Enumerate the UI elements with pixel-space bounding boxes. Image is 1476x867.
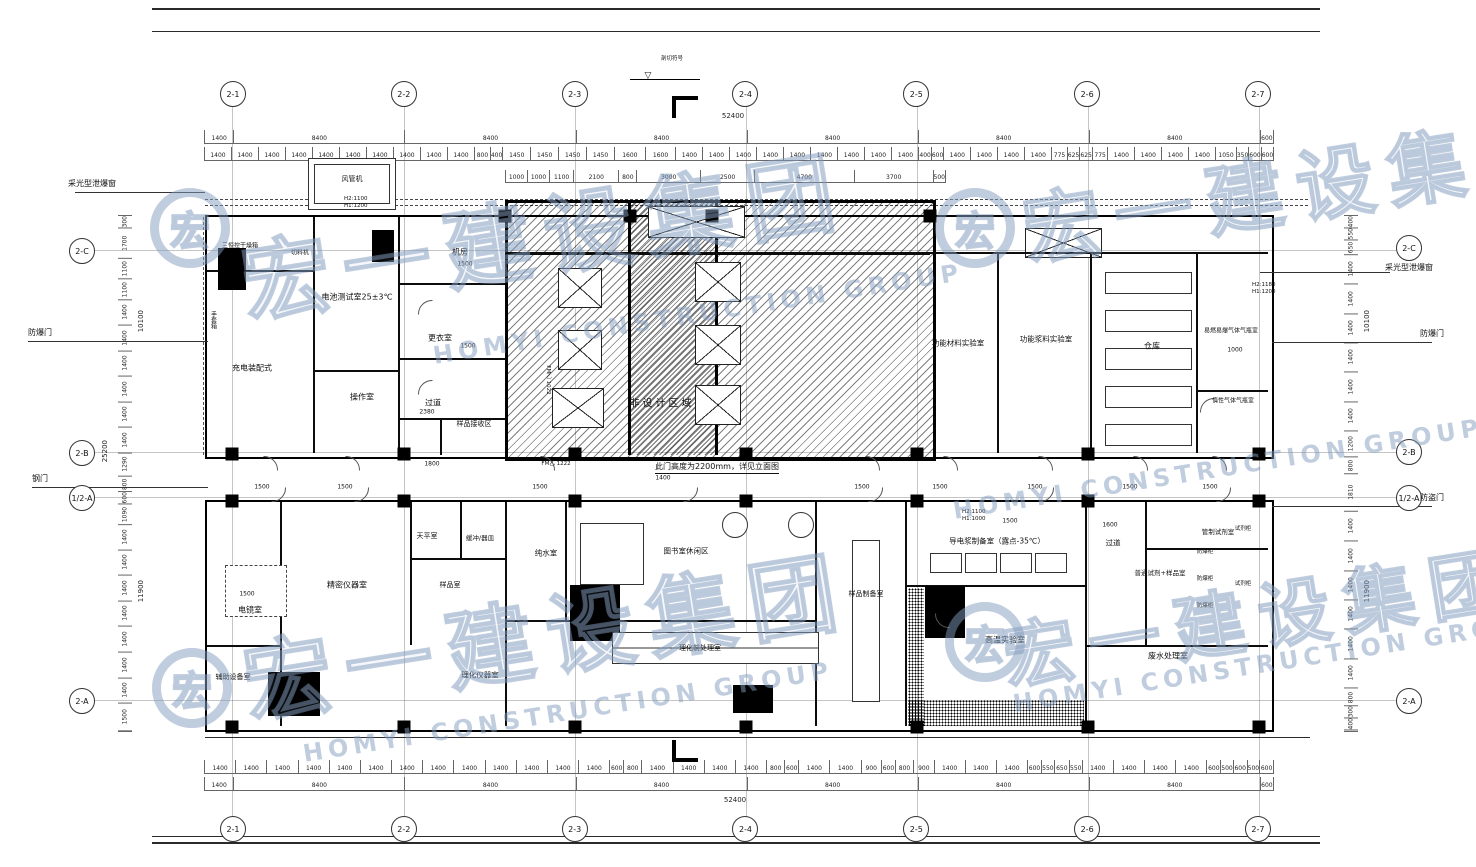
dimension-value: 400 xyxy=(1344,216,1358,228)
sheet-border-line xyxy=(152,31,1320,32)
wall xyxy=(398,358,505,360)
plinth-line xyxy=(205,737,1310,738)
dimension-value: 1400 xyxy=(783,147,810,160)
dimension-value: 550 xyxy=(1344,228,1358,240)
dimension-value: 600 xyxy=(931,147,943,160)
dimension-value: 1100 xyxy=(118,280,132,300)
axis-bubble: 2-5 xyxy=(903,81,929,107)
column xyxy=(911,448,924,461)
dimension-value: 1400 xyxy=(798,760,829,773)
equipment-label: 手套箱 xyxy=(209,311,218,329)
dimension-value: 1400 xyxy=(735,760,766,773)
skylight-window-label: 采光型泄爆窗 xyxy=(68,178,116,189)
room-label: 普通试剂+样品室 xyxy=(1135,567,1186,577)
dimension-value: 8400 xyxy=(918,777,1089,790)
dimension-value: 1400 xyxy=(1082,760,1113,773)
room-label: 废水处理室 xyxy=(1148,651,1188,662)
axis-bubble: 2-C xyxy=(1396,235,1422,261)
dimension-value: 800 xyxy=(1344,457,1358,474)
cabinet-label: 防爆柜 xyxy=(1197,601,1214,609)
column xyxy=(499,210,512,223)
column xyxy=(924,210,937,223)
column xyxy=(226,495,239,508)
room-label: 充电装配式 xyxy=(232,363,272,374)
height-note: H1:1200 xyxy=(1252,289,1276,295)
wall xyxy=(997,253,999,453)
dimension-value: 1400 xyxy=(1344,630,1358,659)
dimension-value: 1400 xyxy=(118,300,132,326)
equipment-xbox xyxy=(695,262,741,302)
inline-dim: 1400 xyxy=(655,475,670,482)
column xyxy=(624,210,637,223)
column xyxy=(740,495,753,508)
lab-bench xyxy=(852,540,880,702)
blast-door-label: 防爆门 xyxy=(28,327,52,338)
dimension-value: 1400 xyxy=(204,130,233,143)
leader-line xyxy=(28,341,208,342)
dimension-value: 1400 xyxy=(118,402,132,428)
wall xyxy=(440,418,442,455)
inline-dim: 1500 xyxy=(254,484,269,491)
wall xyxy=(905,502,907,726)
dimension-value: 1400 xyxy=(329,760,360,773)
dimension-value: 550 xyxy=(1069,760,1082,773)
dimension-value: 1400 xyxy=(1344,402,1358,431)
dimension-value: 650 xyxy=(1054,760,1069,773)
dimension-value: 1090 xyxy=(118,505,132,525)
wall xyxy=(505,620,817,622)
room-label: 过道 xyxy=(1106,538,1121,549)
axis-bubble: 2-7 xyxy=(1245,81,1271,107)
door-arc xyxy=(1120,456,1148,484)
dimension-value: 775 xyxy=(1092,147,1107,160)
storage-rack xyxy=(1105,424,1192,446)
storage-rack xyxy=(1105,386,1192,408)
dimension-value: 600 xyxy=(1233,760,1247,773)
dimension-value: 625 xyxy=(1079,147,1092,160)
column xyxy=(398,495,411,508)
dimension-value: 1400 xyxy=(1144,760,1175,773)
column xyxy=(740,721,753,734)
room-label: 功能材料实验室 xyxy=(932,338,985,349)
wall xyxy=(930,252,1268,254)
inline-dim: 1500 xyxy=(932,484,947,491)
axis-bubble: 1/2-A xyxy=(69,485,95,511)
dimension-value: 350 xyxy=(1236,147,1248,160)
dimension-value: 1400 xyxy=(829,760,860,773)
column xyxy=(1082,448,1095,461)
dimension-value: 1400 xyxy=(420,147,447,160)
dimension-value: 1000 xyxy=(505,170,527,182)
wall xyxy=(313,370,398,372)
height-note: H1:1000 xyxy=(962,516,986,522)
wall xyxy=(207,645,280,647)
dimension-value: 600 xyxy=(1261,147,1273,160)
dimension-value: 1400 xyxy=(1344,285,1358,314)
cabinet-label: 防爆柜 xyxy=(1197,574,1214,582)
room-label: 理化前处理室 xyxy=(679,643,721,653)
dimension-value: 1400 xyxy=(485,760,516,773)
dimension-value: 1400 xyxy=(997,147,1024,160)
dimension-value: 1290 xyxy=(118,453,132,477)
dimension-value: 1400 xyxy=(204,777,233,790)
dimension-value: 1400 xyxy=(810,147,837,160)
column xyxy=(398,448,411,461)
dimension-value: 1450 xyxy=(558,147,586,160)
dimension-value: 1400 xyxy=(258,147,285,160)
wall-dashed-line xyxy=(203,217,204,455)
dimension-value: 1400 xyxy=(641,760,672,773)
dimension-value: 1450 xyxy=(530,147,558,160)
cabinet xyxy=(1000,553,1032,573)
leader-line xyxy=(75,192,205,193)
dimension-value: 1400 xyxy=(943,147,970,160)
room-label: 缓冲/器皿 xyxy=(466,532,494,542)
dimension-value: 1400 xyxy=(1344,600,1358,629)
cabinet xyxy=(1035,553,1067,573)
round-table xyxy=(788,512,814,538)
leader-line xyxy=(1272,342,1432,343)
inline-dim: 2380 xyxy=(419,409,434,416)
dimension-value: 600 xyxy=(1259,760,1273,773)
column xyxy=(569,495,582,508)
dim-row-bottom-spans: 1400840084008400840084008400600 xyxy=(204,777,1274,791)
axis-bubble: 2-5 xyxy=(903,816,929,842)
left-total-dimension: 25200 xyxy=(101,440,109,462)
dimension-value: 1700 xyxy=(118,228,132,259)
dimension-value: 1400 xyxy=(965,760,996,773)
inline-dim: 1500 xyxy=(1202,484,1217,491)
equipment-xbox xyxy=(695,325,741,365)
dimension-value: 3000 xyxy=(636,170,700,182)
wall xyxy=(410,558,505,560)
column xyxy=(398,721,411,734)
axis-bubbles-bottom: 2-12-22-32-42-52-62-7 xyxy=(220,816,1271,842)
room-label: 样品制备室 xyxy=(849,589,884,599)
inline-dim: 1500 xyxy=(854,484,869,491)
height-note: H2:1180 xyxy=(1252,282,1276,288)
dimension-value: 8400 xyxy=(404,777,575,790)
dimension-value: 8400 xyxy=(233,130,404,143)
dimension-value: 300 xyxy=(118,216,132,228)
dimension-value: 1400 xyxy=(547,760,578,773)
logo-glyph: 宏 xyxy=(170,199,210,257)
inline-dim: 1600 xyxy=(1102,522,1117,529)
dimension-value: 800 xyxy=(474,147,490,160)
dimension-value: 1400 xyxy=(891,147,918,160)
column xyxy=(226,448,239,461)
room-label: 机房 xyxy=(452,247,468,258)
dimension-value: 1400 xyxy=(1175,760,1206,773)
column xyxy=(911,495,924,508)
dimension-value: 1100 xyxy=(549,170,573,182)
section-mark xyxy=(672,96,698,118)
cabinet xyxy=(965,553,997,573)
dimension-value: 400 xyxy=(918,147,930,160)
height-note: H1:1200 xyxy=(344,203,368,209)
axis-bubble: 2-B xyxy=(1396,439,1422,465)
blast-door-label: 防爆门 xyxy=(1420,328,1444,339)
library-table xyxy=(580,523,644,585)
storage-rack xyxy=(1105,272,1192,294)
dimension-value: 1400 xyxy=(118,627,132,653)
door-height-note: 此门高度为2200mm，详见立面图 xyxy=(655,461,779,474)
dim-row-bottom-fine: 1400140014001400140014001400140014001400… xyxy=(204,760,1274,774)
dimension-value: 1400 xyxy=(1344,659,1358,688)
dimension-value: 8400 xyxy=(233,777,404,790)
wall xyxy=(313,217,315,453)
door-tag: FM乙 1022 xyxy=(544,365,552,394)
axis-bubble: 2-3 xyxy=(562,816,588,842)
equipment-block xyxy=(268,672,320,716)
dimension-value: 1400 xyxy=(864,147,891,160)
dimension-value: 800 xyxy=(1344,689,1358,706)
dimension-value: 8400 xyxy=(1089,777,1260,790)
leader-line xyxy=(32,487,208,488)
dimension-value: 600 xyxy=(1206,760,1220,773)
dimension-value: 800 xyxy=(618,170,636,182)
dimension-value: 1400 xyxy=(1344,255,1358,284)
dimension-value: 4700 xyxy=(754,170,854,182)
dimension-value: 1400 xyxy=(298,760,329,773)
dimension-value: 1400 xyxy=(1344,373,1358,402)
dimension-value: 1400 xyxy=(729,147,756,160)
dimension-value: 1400 xyxy=(204,760,235,773)
room-label: 导电浆制备室（露点-35℃） xyxy=(949,536,1045,547)
room-label: 图书室休闲区 xyxy=(664,546,709,557)
dimension-value: 8400 xyxy=(918,130,1089,143)
dimension-value: 400 xyxy=(1344,718,1358,730)
room-label: 非设计区域 xyxy=(630,395,695,410)
dimension-value: 1400 xyxy=(118,653,132,679)
dimension-value: 1400 xyxy=(118,678,132,704)
room-label: 电镜室 xyxy=(238,605,262,616)
dimension-value: 1400 xyxy=(360,760,391,773)
dimension-value: 1400 xyxy=(516,760,547,773)
door-arc xyxy=(1199,456,1227,484)
dimension-value: 1400 xyxy=(204,147,231,160)
dimension-value: 1400 xyxy=(118,351,132,377)
dimension-value: 2500 xyxy=(700,170,754,182)
dimension-value: 800 xyxy=(766,760,784,773)
column xyxy=(1253,448,1266,461)
dimension-value: 8400 xyxy=(1089,130,1260,143)
dimension-value: 1400 xyxy=(118,601,132,627)
equipment-block xyxy=(925,586,965,638)
dimension-value: 1400 xyxy=(1161,147,1188,160)
dimension-value: 1400 xyxy=(447,147,474,160)
dimension-value: 1400 xyxy=(453,760,484,773)
dimension-value: 600 xyxy=(1027,760,1041,773)
skylight-window-label: 采光型泄爆窗 xyxy=(1385,262,1433,273)
room-label: 精密仪器室 xyxy=(327,580,367,591)
column xyxy=(1082,495,1095,508)
room-label: 天平室 xyxy=(417,531,438,541)
dimension-value: 1600 xyxy=(645,147,676,160)
dimension-value: 1400 xyxy=(391,760,422,773)
inline-dim: 1500 xyxy=(1027,484,1042,491)
cabinet xyxy=(930,553,962,573)
room-label: 高温实验室 xyxy=(985,635,1025,646)
room-label: 样品接收区 xyxy=(457,419,492,429)
inline-dim: 1000 xyxy=(1227,347,1242,354)
dimension-value: 1400 xyxy=(1344,314,1358,343)
cabinet-label: 试剂柜 xyxy=(1235,579,1252,587)
dim-row-top-spans: 1400840084008400840084008400600 xyxy=(204,130,1274,144)
dimension-value: 1400 xyxy=(1134,147,1161,160)
axis-bubble: 2-C xyxy=(69,238,95,264)
dimension-value: 1450 xyxy=(586,147,614,160)
dimension-value: 600 xyxy=(881,760,895,773)
dimension-value: 1400 xyxy=(118,428,132,454)
dimension-value: 1050 xyxy=(1215,147,1236,160)
storage-rack xyxy=(1105,310,1192,332)
dimension-value: 1400 xyxy=(837,147,864,160)
room-label: 惰性气体气瓶室 xyxy=(1212,396,1254,405)
dimension-value: 600 xyxy=(1260,777,1273,790)
dimension-value: 300 xyxy=(1344,706,1358,718)
dimension-value: 900 xyxy=(861,760,881,773)
dimension-value: 1400 xyxy=(118,576,132,602)
dimension-value: 500 xyxy=(933,170,945,182)
height-note: H2:1100 xyxy=(962,509,986,515)
dimension-value: 1400 xyxy=(422,760,453,773)
dimension-value: 400 xyxy=(490,147,502,160)
equipment-xbox xyxy=(552,388,604,428)
axis-bubble: 2-7 xyxy=(1245,816,1271,842)
wall xyxy=(505,502,507,726)
inline-dim: 1500 xyxy=(337,484,352,491)
cabinet-label: 防爆柜 xyxy=(1197,547,1214,555)
column xyxy=(740,448,753,461)
inline-dim: 1500 xyxy=(239,591,254,598)
dimension-value: 1400 xyxy=(118,550,132,576)
benchmark-line xyxy=(630,79,700,80)
wall xyxy=(460,502,462,558)
dimension-value: 1400 xyxy=(1344,343,1358,372)
wall xyxy=(1085,502,1087,726)
dimension-value: 600 xyxy=(118,492,132,504)
dimension-value: 8400 xyxy=(747,777,918,790)
axis-bubble: 2-4 xyxy=(732,816,758,842)
dimension-value: 1450 xyxy=(502,147,530,160)
room-label: 电池测试室25±3℃ xyxy=(322,292,393,303)
wall xyxy=(1085,645,1268,647)
equipment-xbox xyxy=(695,385,741,425)
dimension-value: 500 xyxy=(1220,760,1232,773)
section-mark xyxy=(672,740,698,762)
wall xyxy=(815,502,817,726)
dimension-value: 500 xyxy=(1247,760,1259,773)
dimension-value: 1400 xyxy=(118,525,132,551)
room-label: 过道 xyxy=(425,398,441,409)
dimension-value: 900 xyxy=(913,760,933,773)
column xyxy=(569,721,582,734)
dim-col-right: 4005506501400140014001400140014001200800… xyxy=(1344,215,1358,732)
room-label: 理化仪器室 xyxy=(461,670,499,681)
insulation-stipple xyxy=(908,700,1084,726)
dimension-value: 800 xyxy=(895,760,913,773)
dimension-value: 8400 xyxy=(576,130,747,143)
dimension-value: 1000 xyxy=(527,170,549,182)
dimension-value: 1400 xyxy=(231,147,258,160)
equipment-block xyxy=(372,230,394,262)
wall xyxy=(505,252,930,255)
axis-bubbles-top: 2-12-22-32-42-52-62-7 xyxy=(220,81,1271,107)
room-label: 管制试剂室 xyxy=(1202,526,1235,536)
axis-bubble: 2-2 xyxy=(391,816,417,842)
dimension-value: 1100 xyxy=(118,259,132,279)
sheet-border-line xyxy=(152,842,1320,844)
wall xyxy=(1090,253,1092,453)
inline-dim: 1800 xyxy=(424,461,439,468)
floor-plan-sheet: 2-12-22-32-42-52-62-7 2-12-22-32-42-52-6… xyxy=(0,0,1476,867)
dimension-value: 1400 xyxy=(1188,147,1215,160)
axis-bubble: 2-1 xyxy=(220,816,246,842)
dimension-value: 1400 xyxy=(118,326,132,352)
dimension-value: 600 xyxy=(1248,147,1260,160)
leader-line xyxy=(1260,272,1390,273)
door-arc xyxy=(250,456,278,484)
door-tag: FM乙 1222 xyxy=(541,459,570,467)
dimension-value: 1400 xyxy=(266,760,297,773)
section-dimension: 10100 xyxy=(137,310,145,332)
equipment-label: 切料机 xyxy=(291,248,309,257)
equipment-xbox xyxy=(558,330,602,370)
dimension-value: 600 xyxy=(609,760,623,773)
column xyxy=(911,721,924,734)
wall xyxy=(565,502,567,620)
axis-bubble: 2-3 xyxy=(562,81,588,107)
steel-door-label: 钢门 xyxy=(32,473,48,484)
axis-bubble: 2-6 xyxy=(1074,81,1100,107)
overall-dimension: 52400 xyxy=(722,112,744,120)
dimension-value: 1400 xyxy=(118,377,132,403)
axis-bubble: 1/2-A xyxy=(1396,485,1422,511)
inline-dim: 1500 xyxy=(532,484,547,491)
equipment-xbox xyxy=(558,268,602,308)
dimension-value: 1400 xyxy=(1024,147,1051,160)
dimension-value: 1400 xyxy=(393,147,420,160)
dimension-value: 8400 xyxy=(576,777,747,790)
room-label: 功能浆料实验室 xyxy=(1020,334,1073,345)
equipment-label: 三恒控干燥箱 xyxy=(222,241,258,250)
section-dimension: 11900 xyxy=(137,580,145,602)
inline-dim: 1500 xyxy=(460,343,475,350)
axis-bubble: 2-6 xyxy=(1074,816,1100,842)
dimension-value: 1400 xyxy=(235,760,266,773)
dimension-value: 1400 xyxy=(1113,760,1144,773)
inline-dim: 1500 xyxy=(1002,518,1017,525)
room-label: 辅助设备室 xyxy=(216,672,251,682)
room-label: 更衣室 xyxy=(428,333,452,344)
dimension-value: 8400 xyxy=(747,130,918,143)
room-label: 易燃易爆气体气瓶室 xyxy=(1198,326,1264,335)
dimension-value: 600 xyxy=(1260,130,1273,143)
dimension-value: 1400 xyxy=(996,760,1027,773)
inline-dim: 1500 xyxy=(1122,484,1137,491)
dimension-value: 1400 xyxy=(756,147,783,160)
round-table xyxy=(722,512,748,538)
dimension-value: 1400 xyxy=(704,760,735,773)
axis-bubble: 2-1 xyxy=(220,81,246,107)
sheet-border-line xyxy=(152,8,1320,10)
dimension-value: 650 xyxy=(1344,241,1358,255)
dimension-value: 625 xyxy=(1067,147,1080,160)
height-note: H2:1100 xyxy=(344,196,368,202)
dimension-value: 1400 xyxy=(1107,147,1134,160)
dimension-value: 800 xyxy=(118,477,132,492)
